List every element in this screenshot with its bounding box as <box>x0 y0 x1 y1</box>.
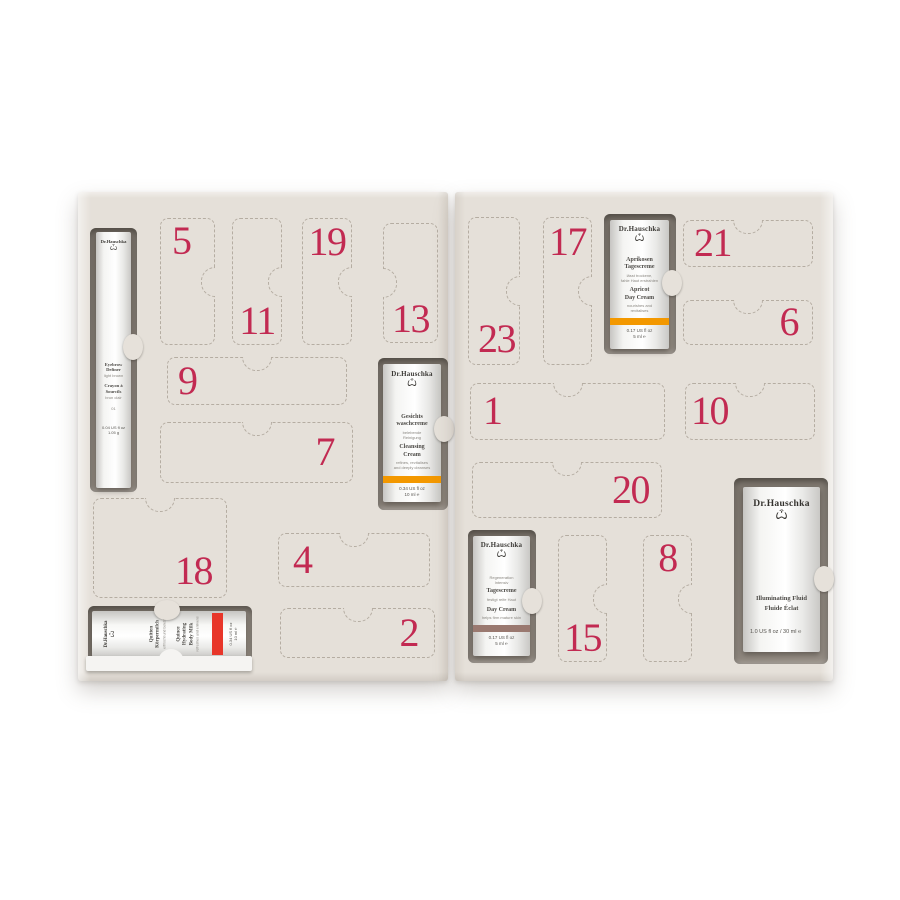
door-notch <box>733 220 763 234</box>
color-band <box>473 625 530 632</box>
door-notch <box>145 498 175 512</box>
door-8: 8 <box>643 535 692 662</box>
door-11-number: 11 <box>239 305 275 338</box>
product-name-de: Tagescreme <box>487 588 517 596</box>
volume-line: 5 ml ℮ <box>489 641 515 647</box>
product-subtitle-en: nourishes and revitalises <box>627 303 652 313</box>
slot-tab <box>814 566 834 592</box>
product-range: Regeneration Intensiv <box>489 575 513 585</box>
door-23: 23 <box>468 217 520 365</box>
product-subtitle-de: lässt trockene, fahle Haut erstrahlen <box>621 273 658 283</box>
product-name: Illuminating Fluid Fluide Éclat <box>756 594 807 613</box>
door-5-number: 5 <box>172 225 191 258</box>
door-6-number: 6 <box>780 306 799 339</box>
volume-line: 10 ml ℮ <box>233 612 238 656</box>
dr-hauschka-logo-icon: Ѽ <box>497 551 506 559</box>
color-band <box>212 613 223 655</box>
door-notch <box>678 584 692 614</box>
door-15-number: 15 <box>564 622 601 655</box>
dr-hauschka-logo-icon: Ѽ <box>776 512 788 522</box>
subtitle-line: refreshes and enlivens <box>195 612 200 656</box>
slot-tab <box>522 588 542 614</box>
product-name-en: Eyebrow Definer <box>105 362 123 374</box>
door-7: 7 <box>160 422 353 483</box>
door-5: 5 <box>160 218 215 345</box>
door-10: 10 <box>685 383 815 440</box>
name-line: Tagescreme <box>625 264 655 272</box>
product-name-de: Aprikosen Tagescreme <box>625 257 655 272</box>
brand-label: Dr.Hauschka <box>101 239 127 245</box>
product-subtitle-en: refines, revitalises and deeply cleanses <box>394 460 430 470</box>
door-2: 2 <box>280 608 435 658</box>
size-label: 0.17 US fl oz 5 ml ℮ <box>489 635 515 646</box>
volume-line: 10 ml ℮ <box>399 492 425 498</box>
door-notch <box>338 267 352 297</box>
name-line: Apricot <box>625 287 654 295</box>
door-18: 18 <box>93 498 227 598</box>
dr-hauschka-logo-icon: Ѽ <box>635 235 644 243</box>
product-name-en: Apricot Day Cream <box>625 287 654 302</box>
name-line: Aprikosen <box>625 257 655 265</box>
door-notch <box>506 276 520 306</box>
brand-label: Dr.Hauschka <box>753 499 810 509</box>
door-1: 1 <box>470 383 665 440</box>
door-notch <box>578 276 592 306</box>
door-20: 20 <box>472 462 662 518</box>
door-notch <box>552 462 582 476</box>
door-20-number: 20 <box>612 474 649 507</box>
slot-tab <box>662 270 682 296</box>
weight-line: 1.05 g <box>102 430 125 435</box>
product-name-en: Day Cream <box>487 607 516 615</box>
door-notch <box>268 267 282 297</box>
product-box-cleansing-cream: Dr.Hauschka Ѽ Gesichts waschcreme belebe… <box>383 364 441 502</box>
brand-label: Dr.Hauschka <box>481 542 522 550</box>
door-notch <box>339 533 369 547</box>
product-name-de: Gesichts waschcreme <box>396 414 427 429</box>
door-1-number: 1 <box>483 395 502 428</box>
product-subtitle-en: helps firm mature skin <box>482 615 521 620</box>
slot-tab <box>154 600 180 620</box>
range-line: Intensiv <box>489 580 513 585</box>
color-band <box>383 476 441 483</box>
product-box-eyebrow-definer: Dr.Hauschka Ѽ Eyebrow Definer light brow… <box>96 232 131 488</box>
name-line: Day Cream <box>625 295 654 303</box>
door-17-number: 17 <box>549 226 586 259</box>
door-13-number: 13 <box>392 303 429 336</box>
color-band <box>610 318 669 325</box>
product-photo-stage: 5 11 19 13 9 7 <box>0 0 900 900</box>
size-label: 0.34 US fl oz 10 ml ℮ <box>228 612 238 656</box>
door-6: 6 <box>683 300 813 345</box>
dr-hauschka-logo-icon: Ѽ <box>110 612 116 656</box>
tray-edge-strip <box>86 656 252 671</box>
subtitle-line: revitalises <box>627 308 652 313</box>
shade-number: 01 <box>111 406 115 411</box>
door-notch <box>343 608 373 622</box>
shade-label-en: light brown <box>104 373 123 378</box>
dr-hauschka-logo-icon: Ѽ <box>110 246 117 252</box>
size-label: 0.17 US fl oz 5 ml ℮ <box>627 328 653 339</box>
door-8-number: 8 <box>658 542 677 575</box>
door-notch <box>201 267 215 297</box>
door-9-number: 9 <box>178 365 197 398</box>
door-21: 21 <box>683 220 813 267</box>
product-box-apricot-day-cream: Dr.Hauschka Ѽ Aprikosen Tagescreme lässt… <box>610 220 669 349</box>
slot-tab <box>434 416 454 442</box>
door-notch <box>383 268 397 298</box>
door-4-number: 4 <box>293 544 312 577</box>
name-line: Fluide Éclat <box>756 604 807 613</box>
door-9: 9 <box>167 357 347 405</box>
door-15: 15 <box>558 535 607 662</box>
product-box-illuminating-fluid: Dr.Hauschka Ѽ Illuminating Fluid Fluide … <box>743 487 820 652</box>
brand-label: Dr.Hauschka <box>619 226 660 234</box>
size-label: 0.34 US fl oz 10 ml ℮ <box>399 486 425 497</box>
subtitle-line: fahle Haut erstrahlen <box>621 278 658 283</box>
product-slot-apricot-day-cream: Dr.Hauschka Ѽ Aprikosen Tagescreme lässt… <box>604 214 676 354</box>
name-line: Cleansing <box>399 444 424 452</box>
calendar-right-panel: 23 17 21 6 1 10 <box>455 192 833 681</box>
shade-label-fr: brun clair <box>105 395 121 400</box>
door-21-number: 21 <box>694 227 731 260</box>
subtitle-line: Reinigung <box>403 435 422 440</box>
door-notch <box>733 300 763 314</box>
door-notch <box>593 584 607 614</box>
name-line: Cream <box>399 452 424 460</box>
name-line: Crayon à <box>104 383 122 389</box>
door-19-number: 19 <box>309 226 346 259</box>
door-13: 13 <box>383 223 438 343</box>
size-label: 1.0 US fl oz / 30 ml ℮ <box>750 629 801 635</box>
subtitle-line: and deeply cleanses <box>394 465 430 470</box>
product-name-en: Cleansing Cream <box>399 444 424 459</box>
door-notch <box>242 422 272 436</box>
door-4: 4 <box>278 533 430 587</box>
dr-hauschka-logo-icon: Ѽ <box>407 380 416 388</box>
product-slot-eyebrow-definer: Dr.Hauschka Ѽ Eyebrow Definer light brow… <box>90 228 137 492</box>
name-line: Gesichts <box>396 414 427 422</box>
calendar-left-panel: 5 11 19 13 9 7 <box>78 192 448 681</box>
door-17: 17 <box>543 217 592 365</box>
product-slot-day-cream: Dr.Hauschka Ѽ Regeneration Intensiv Tage… <box>468 530 536 663</box>
door-23-number: 23 <box>478 323 515 356</box>
product-slot-cleansing-cream: Dr.Hauschka Ѽ Gesichts waschcreme belebe… <box>378 358 448 510</box>
brand-label: Dr.Hauschka <box>391 371 432 379</box>
door-7-number: 7 <box>316 436 335 469</box>
volume-line: 5 ml ℮ <box>627 334 653 340</box>
door-notch <box>242 357 272 371</box>
product-name-en: Quince Hydrating Body Milk refreshes and… <box>176 612 199 656</box>
door-18-number: 18 <box>175 555 212 588</box>
size-label: 0.04 US fl oz 1.05 g <box>102 425 125 436</box>
door-10-number: 10 <box>691 395 728 428</box>
door-notch <box>735 383 765 397</box>
product-box-day-cream: Dr.Hauschka Ѽ Regeneration Intensiv Tage… <box>473 536 530 656</box>
door-2-number: 2 <box>400 617 419 650</box>
product-subtitle-de: belebende Reinigung <box>403 430 422 440</box>
name-line: Illuminating Fluid <box>756 594 807 603</box>
door-19: 19 <box>302 218 352 345</box>
product-name-fr: Crayon à Sourcils <box>104 383 122 395</box>
product-slot-illuminating-fluid: Dr.Hauschka Ѽ Illuminating Fluid Fluide … <box>734 478 828 664</box>
brand-label: Dr.Hauschka Ѽ <box>104 612 116 656</box>
door-11: 11 <box>232 218 282 345</box>
slot-tab <box>123 334 143 360</box>
name-line: waschcreme <box>396 421 427 429</box>
product-subtitle-de: festigt reife Haut <box>487 597 516 602</box>
advent-calendar: 5 11 19 13 9 7 <box>78 192 833 681</box>
door-notch <box>553 383 583 397</box>
